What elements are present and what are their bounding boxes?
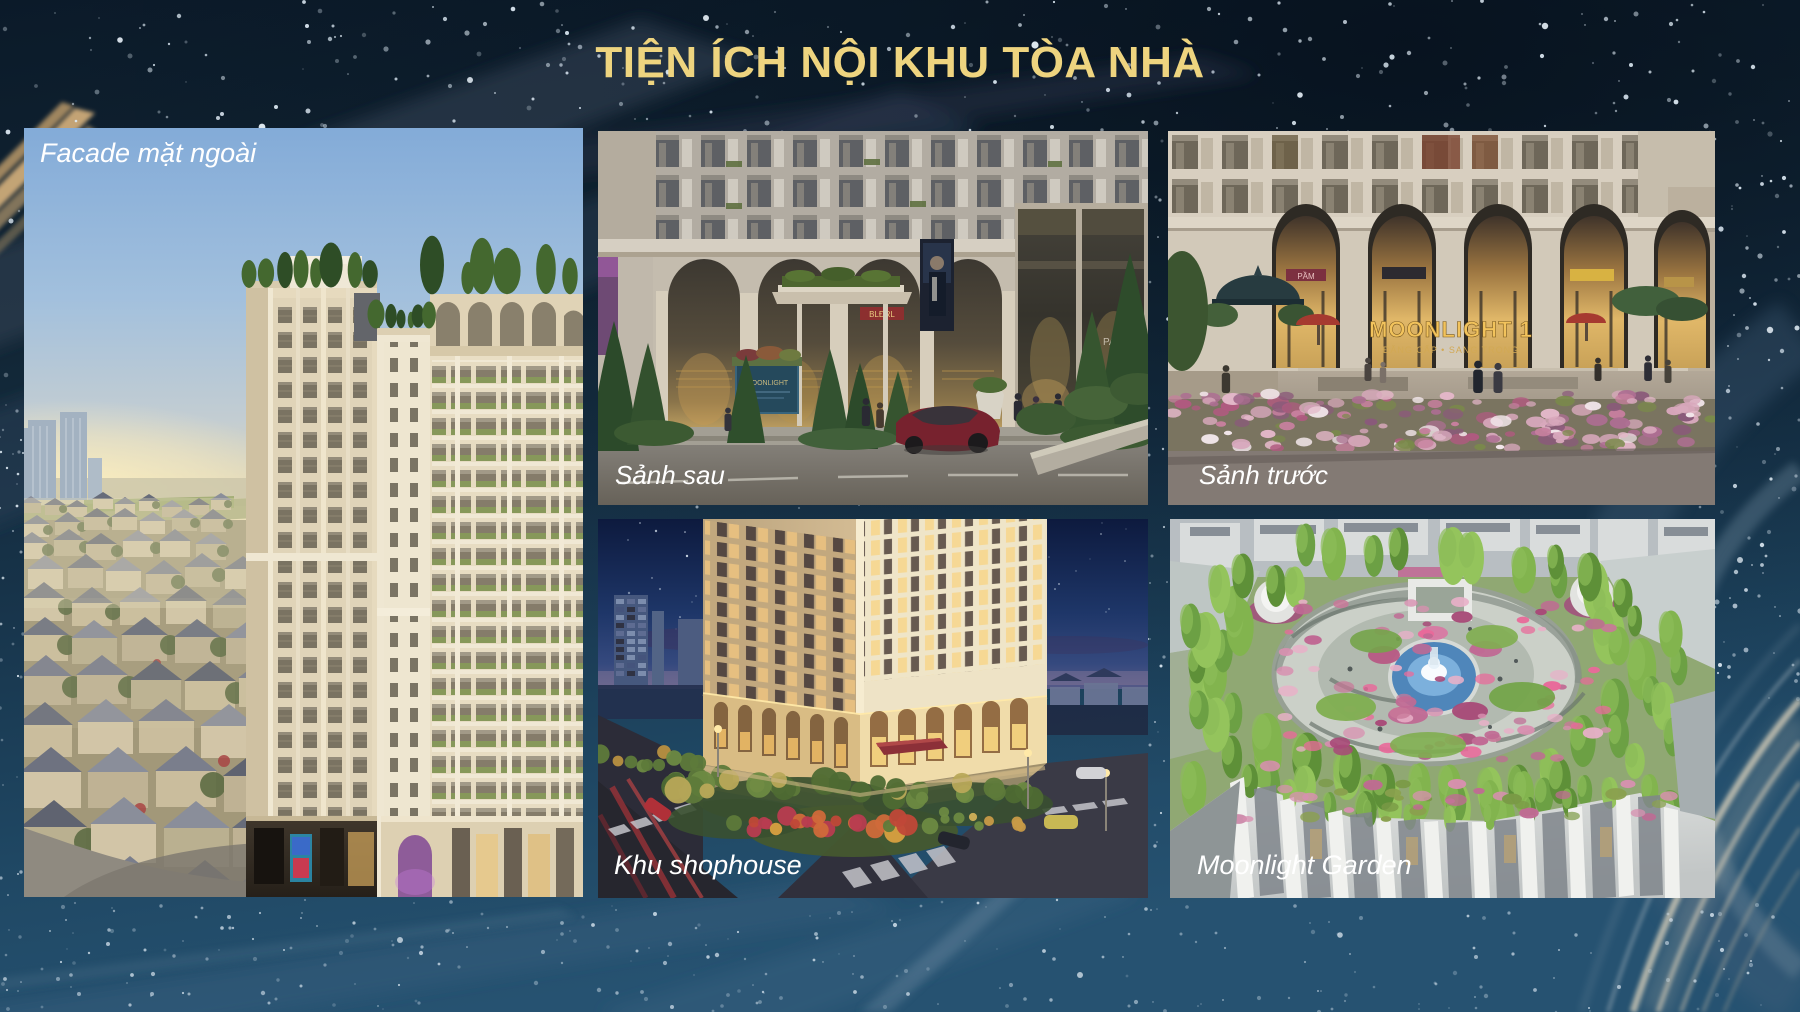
svg-text:MOONLIGHT 1: MOONLIGHT 1 bbox=[1369, 317, 1533, 342]
svg-text:PẦM: PẦM bbox=[1297, 271, 1315, 281]
svg-text:ĐẰNG CẤP • SANG TRỌNG: ĐẰNG CẤP • SANG TRỌNG bbox=[1383, 345, 1519, 355]
svg-text:BLĐRL: BLĐRL bbox=[869, 310, 895, 319]
